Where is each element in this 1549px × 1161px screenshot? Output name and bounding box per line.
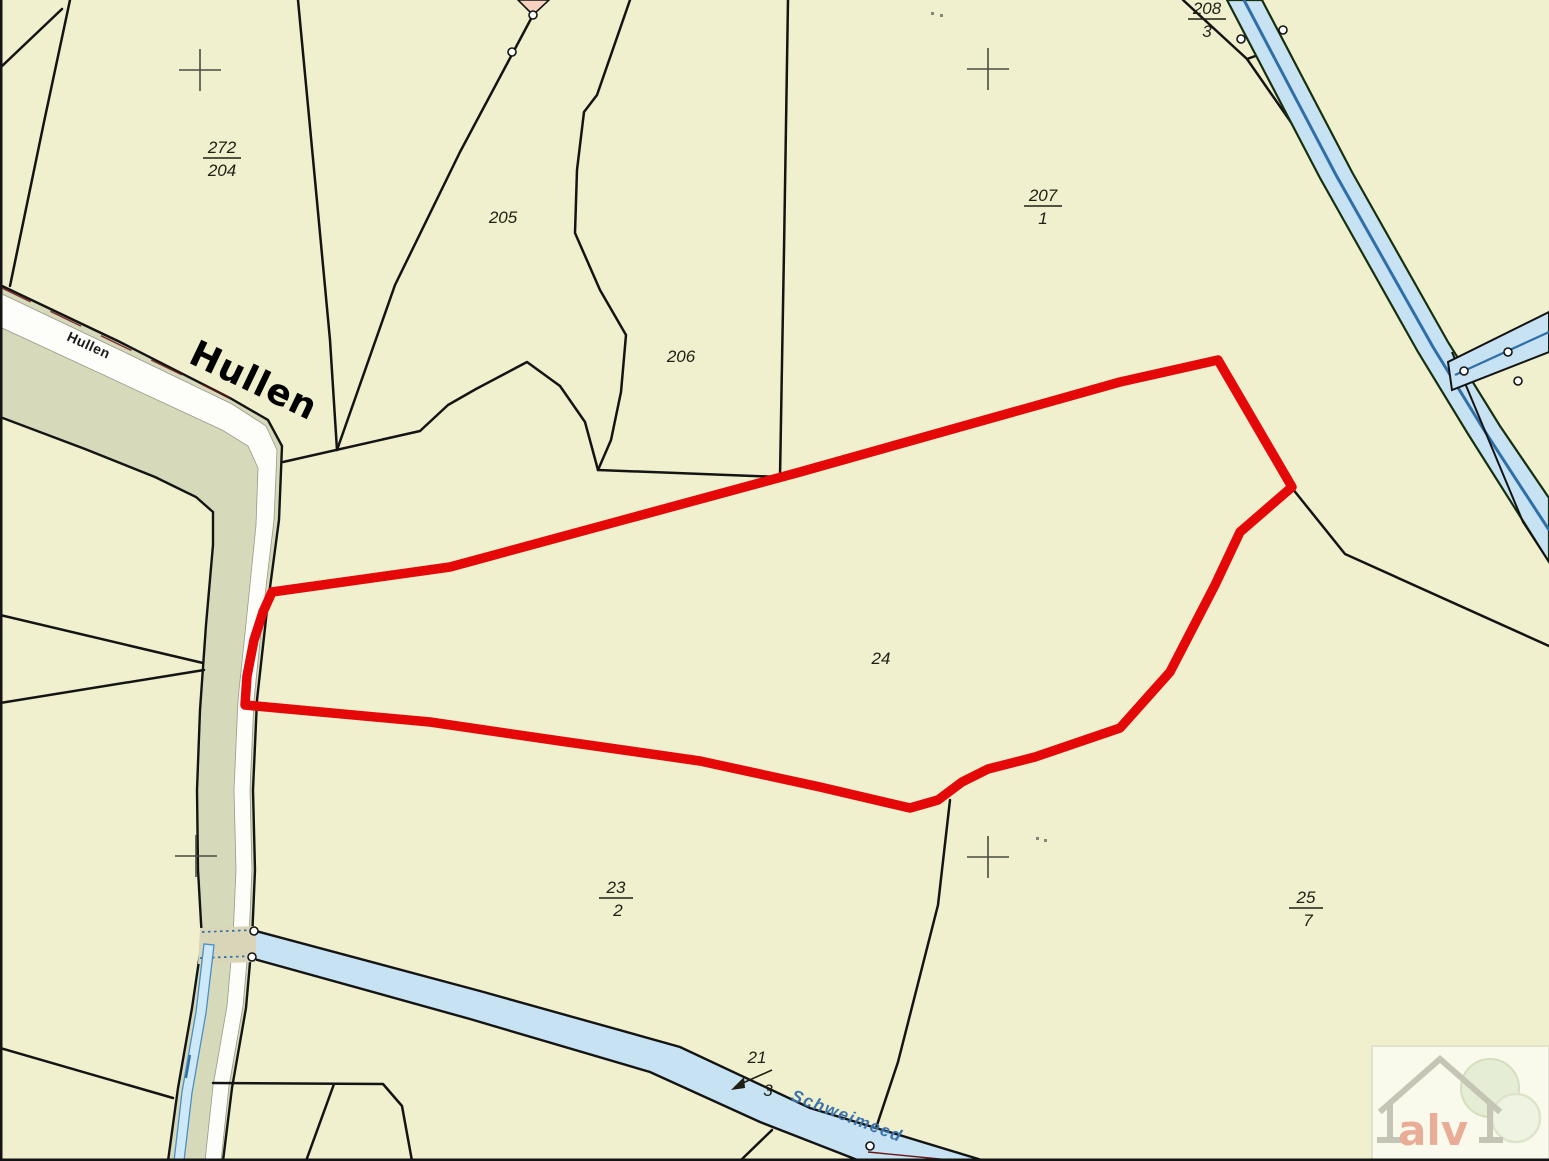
map-frame-left — [0, 0, 3, 1161]
parcel-label-denominator: 1 — [1038, 209, 1047, 228]
parcel-label-numerator: 21 — [747, 1048, 767, 1067]
survey-point — [529, 11, 537, 19]
parcel-label-numerator: 207 — [1028, 186, 1058, 205]
survey-point — [250, 927, 258, 935]
survey-point — [1279, 26, 1287, 34]
survey-point — [508, 48, 516, 56]
parcel-label-numerator: 25 — [1296, 888, 1316, 907]
survey-point — [1514, 377, 1522, 385]
survey-point — [1504, 348, 1512, 356]
parcel-label-numerator: 208 — [1192, 0, 1222, 18]
cadastral-map-viewport[interactable]: 272 204 205 206 207 1 208 3 24 23 2 2 — [0, 0, 1549, 1161]
parcel-label-numerator: 272 — [207, 138, 237, 157]
parcel-label-numerator: 23 — [606, 878, 626, 897]
logo-text: alv — [1398, 1106, 1468, 1155]
cadastral-map-canvas[interactable]: 272 204 205 206 207 1 208 3 24 23 2 2 — [0, 0, 1549, 1161]
parcel-label-denominator: 3 — [1202, 22, 1212, 41]
survey-point — [1237, 35, 1245, 43]
survey-point — [248, 953, 256, 961]
parcel-label-denominator: 3 — [763, 1081, 773, 1100]
survey-point — [1460, 367, 1468, 375]
parcel-label-denominator: 7 — [1303, 911, 1313, 930]
survey-point — [866, 1142, 874, 1150]
parcel-label-denominator: 2 — [612, 901, 623, 920]
parcel-label-24: 24 — [871, 649, 891, 668]
alv-logo: alv — [1372, 1046, 1549, 1161]
parcel-label-205: 205 — [488, 208, 518, 227]
parcel-label-206: 206 — [666, 347, 696, 366]
logo-tree-circle — [1492, 1094, 1540, 1142]
parcel-label-denominator: 204 — [207, 161, 236, 180]
